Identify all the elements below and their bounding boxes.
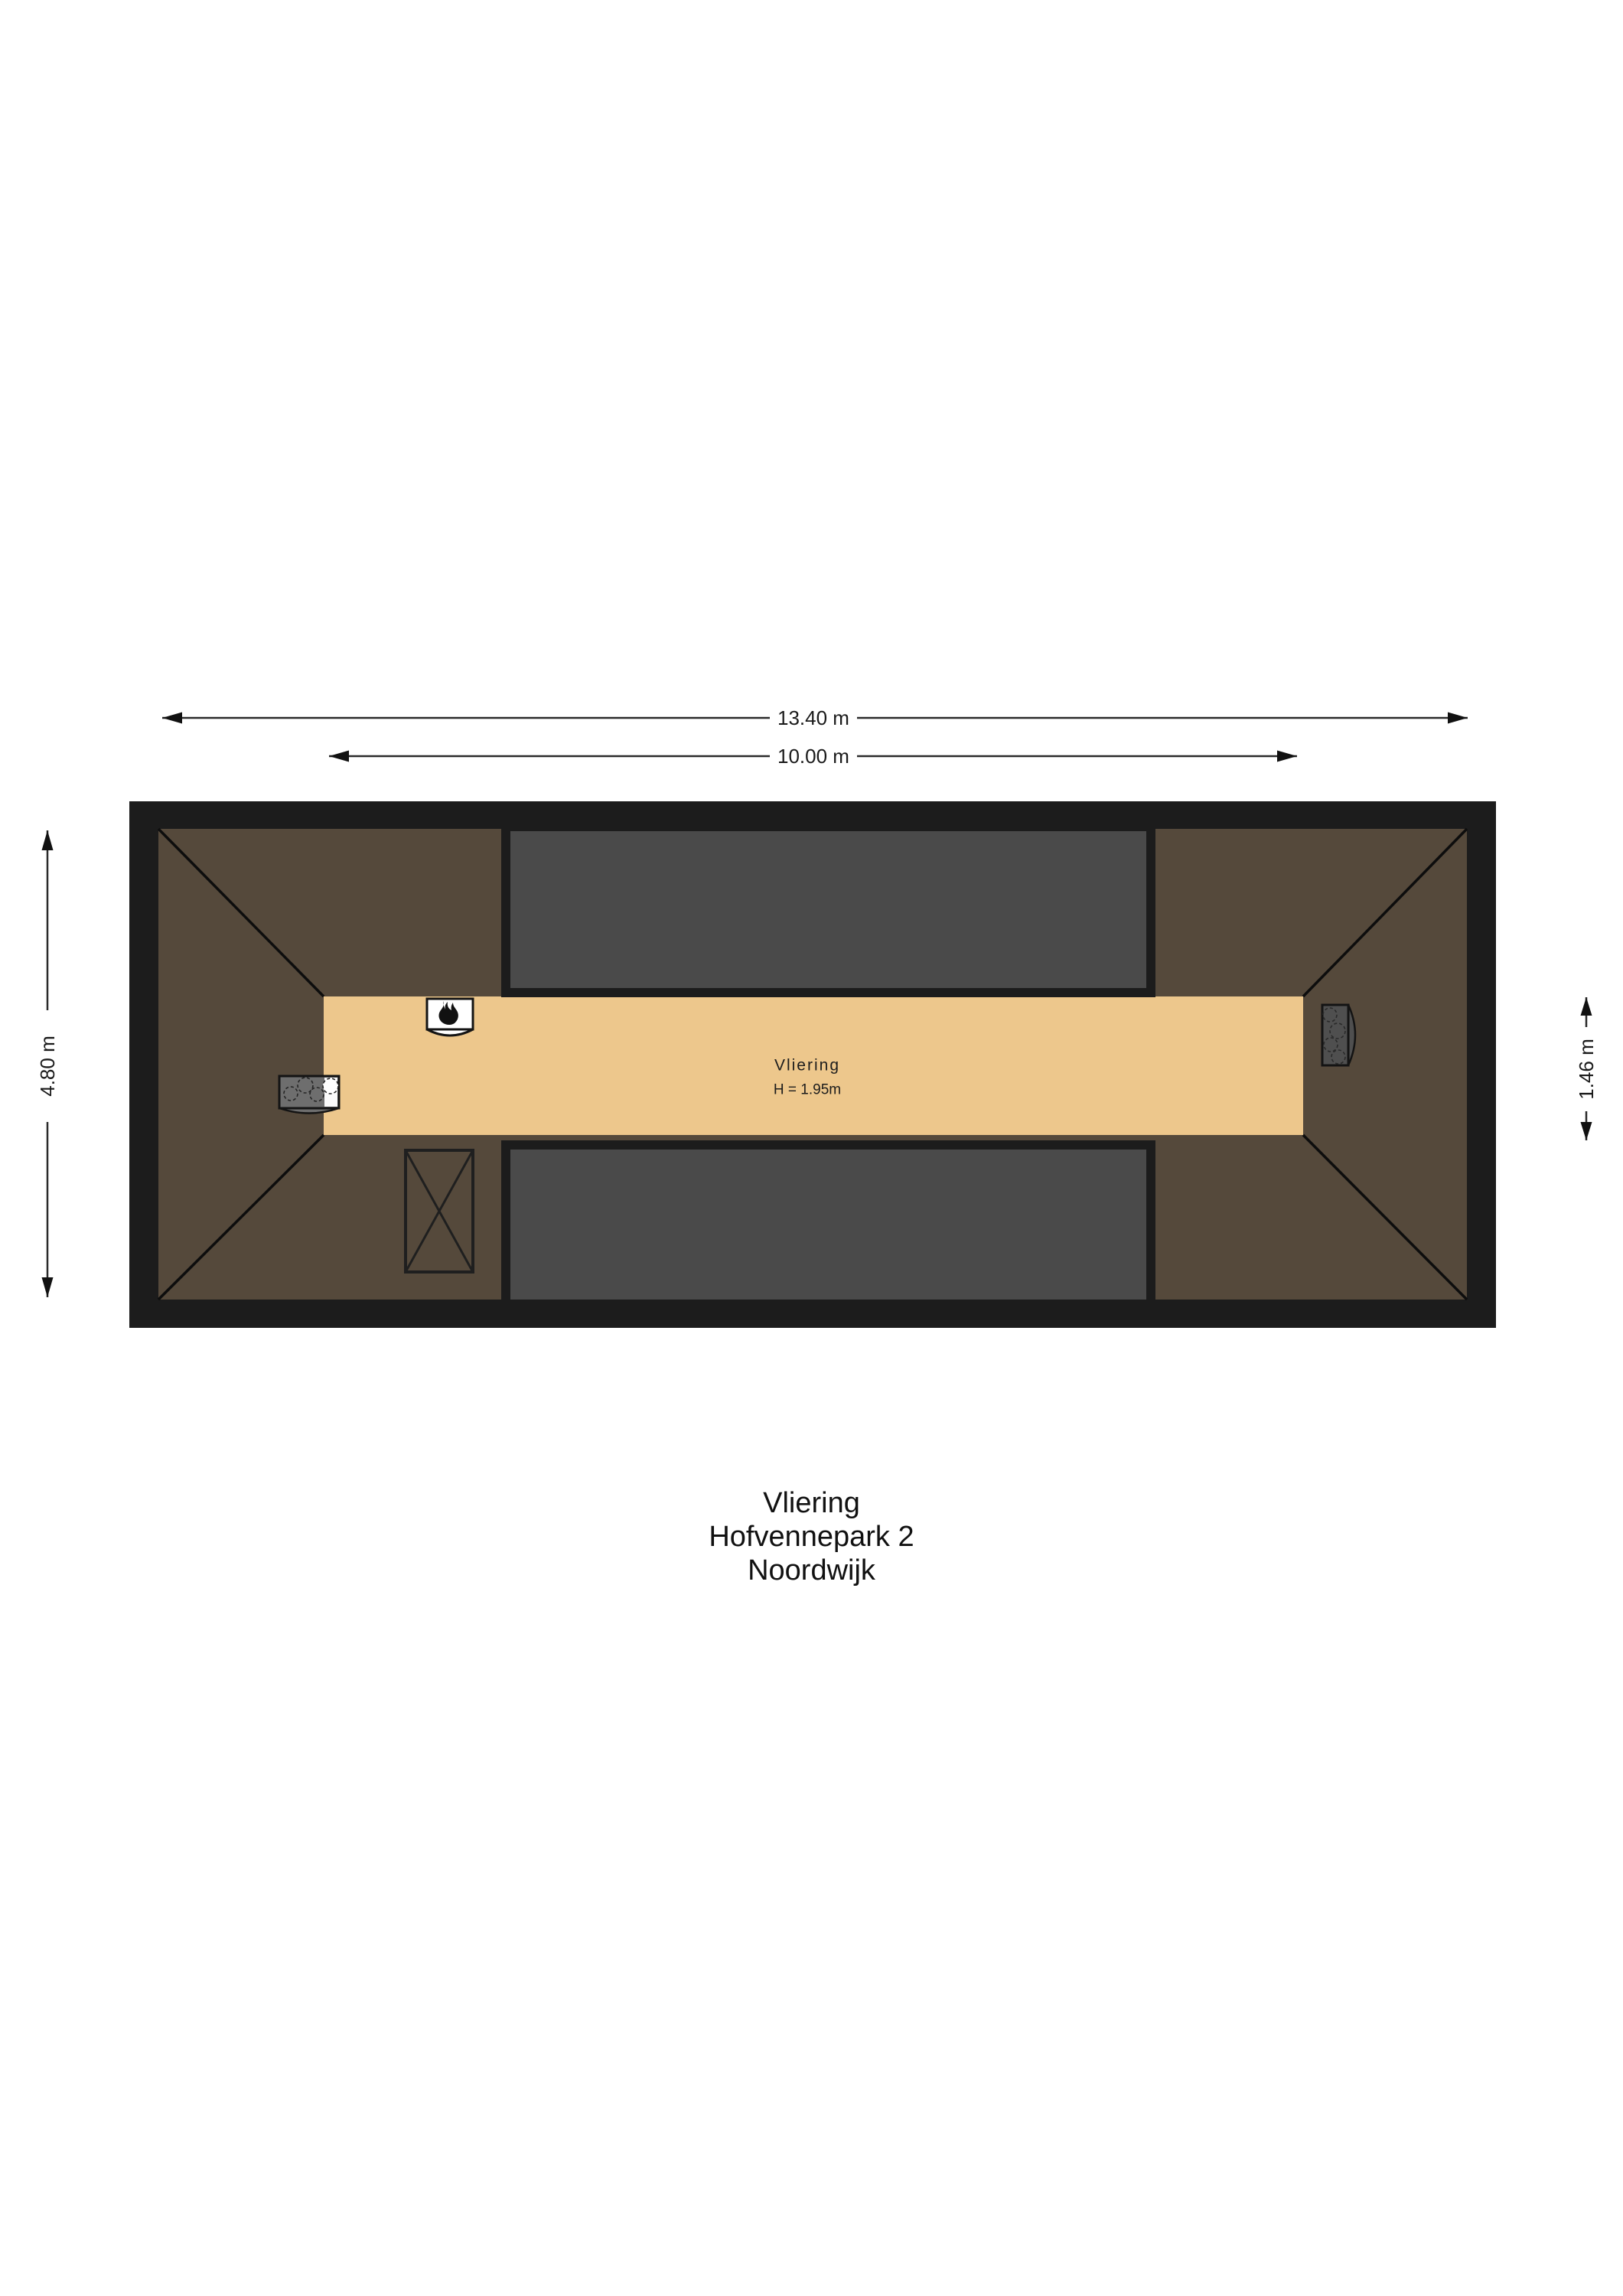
building-plan: Vliering H = 1.95m	[129, 801, 1496, 1328]
dormer-bottom	[501, 1140, 1155, 1328]
dimension-floor-length: 10.00 m	[329, 745, 1297, 768]
room-label: Vliering	[774, 1057, 840, 1075]
arrowhead-up-icon	[42, 830, 54, 850]
arrowhead-right-icon	[1277, 751, 1297, 762]
arrowhead-up-icon	[1581, 997, 1592, 1016]
title-line-address: Hofvennepark 2	[0, 1520, 1623, 1554]
dimension-label-outer-depth: 4.80 m	[36, 1035, 59, 1097]
arrowhead-right-icon	[1448, 713, 1468, 724]
dimension-label-floor-length: 10.00 m	[777, 745, 849, 768]
dimension-label-outer-width: 13.40 m	[777, 706, 849, 729]
burner-circles-icon	[323, 1078, 338, 1094]
dormer-panel	[510, 1150, 1146, 1300]
room-height-label: H = 1.95m	[774, 1082, 841, 1098]
title-line-room: Vliering	[0, 1486, 1623, 1520]
title-line-city: Noordwijk	[0, 1554, 1623, 1587]
arrowhead-down-icon	[42, 1277, 54, 1297]
appliance-left	[279, 1076, 339, 1114]
floorplan-drawing: 13.40 m 10.00 m 4.80 m 1.46 m	[0, 0, 1623, 2296]
appliance-body	[1322, 1005, 1348, 1065]
dimension-outer-width: 13.40 m	[162, 706, 1468, 729]
dormer-top	[501, 801, 1155, 997]
arrowhead-left-icon	[162, 713, 182, 724]
dormer-panel	[510, 831, 1146, 988]
dimension-outer-depth: 4.80 m	[36, 830, 59, 1297]
dimension-label-floor-width: 1.46 m	[1575, 1039, 1598, 1100]
arrowhead-left-icon	[329, 751, 349, 762]
floorplan-canvas: 13.40 m 10.00 m 4.80 m 1.46 m	[0, 0, 1623, 2296]
appliance-right	[1322, 1005, 1355, 1065]
dimension-floor-width: 1.46 m	[1575, 997, 1598, 1140]
boiler-unit	[427, 999, 473, 1035]
plan-title-block: Vliering Hofvennepark 2 Noordwijk	[0, 1486, 1623, 1587]
arrowhead-down-icon	[1581, 1122, 1592, 1140]
